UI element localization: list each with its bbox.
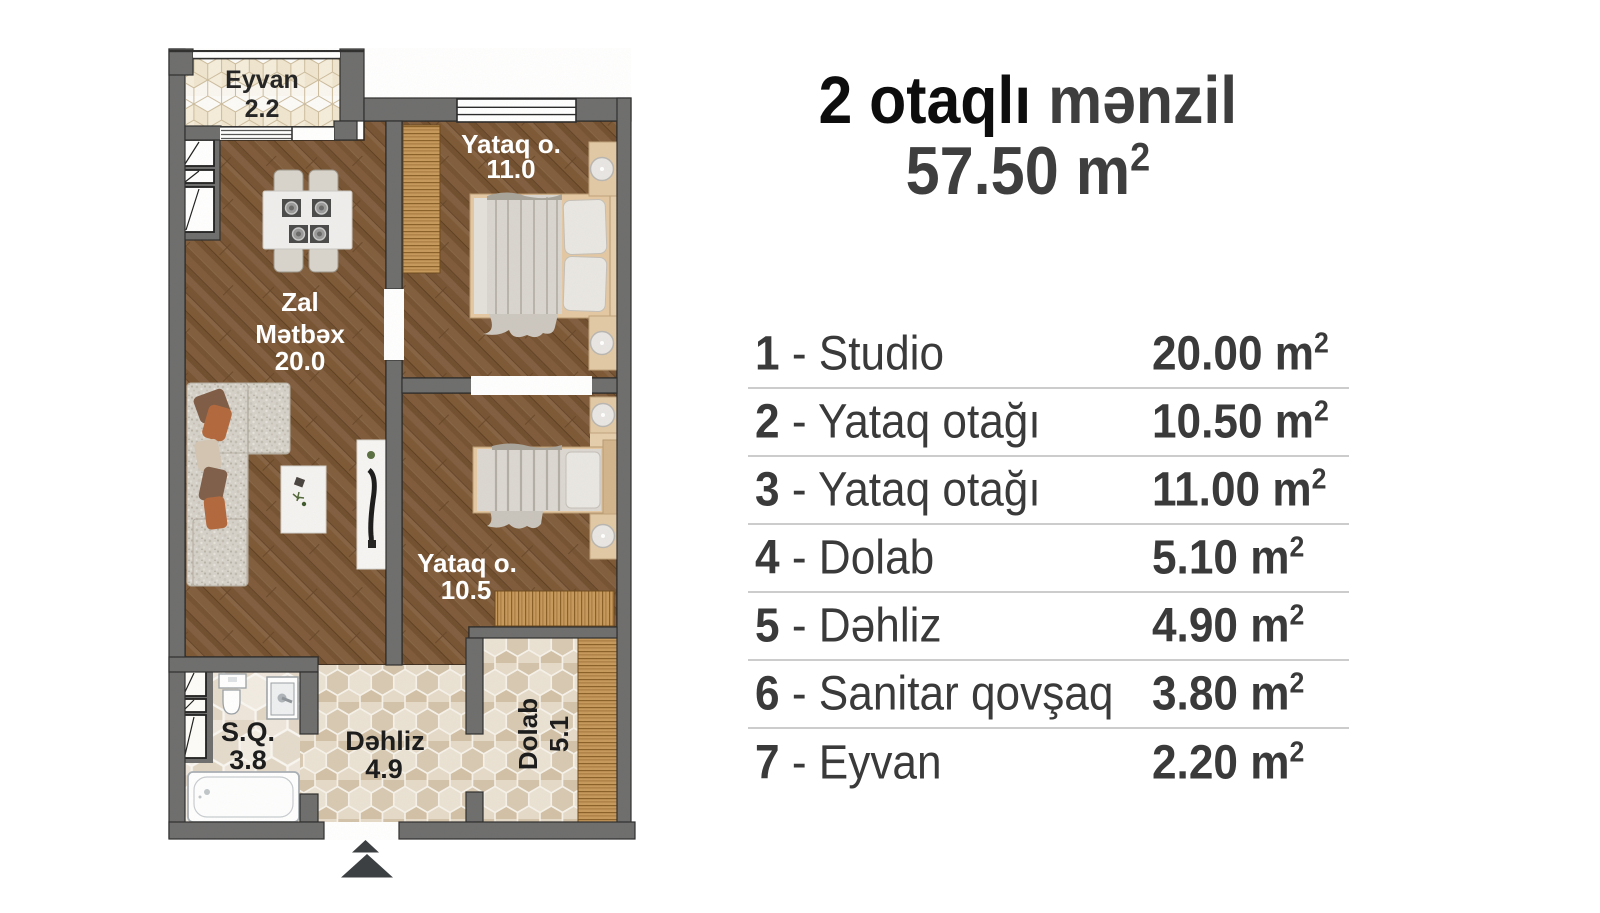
svg-text:Eyvan: Eyvan bbox=[225, 66, 299, 94]
svg-text:4.9: 4.9 bbox=[365, 754, 403, 784]
svg-text:S.Q.: S.Q. bbox=[221, 717, 275, 747]
svg-text:2.2: 2.2 bbox=[245, 95, 280, 123]
svg-text:Yataq o.: Yataq o. bbox=[417, 548, 517, 578]
svg-text:5.1: 5.1 bbox=[544, 716, 574, 752]
svg-text:Zal: Zal bbox=[281, 287, 319, 317]
svg-text:10.5: 10.5 bbox=[441, 575, 492, 605]
svg-text:Dəhliz: Dəhliz bbox=[345, 726, 425, 756]
svg-text:Mətbəx: Mətbəx bbox=[255, 319, 345, 349]
svg-text:11.0: 11.0 bbox=[486, 154, 535, 184]
svg-text:Dolab: Dolab bbox=[513, 698, 543, 770]
svg-text:20.0: 20.0 bbox=[275, 346, 326, 376]
svg-text:3.8: 3.8 bbox=[229, 745, 267, 775]
